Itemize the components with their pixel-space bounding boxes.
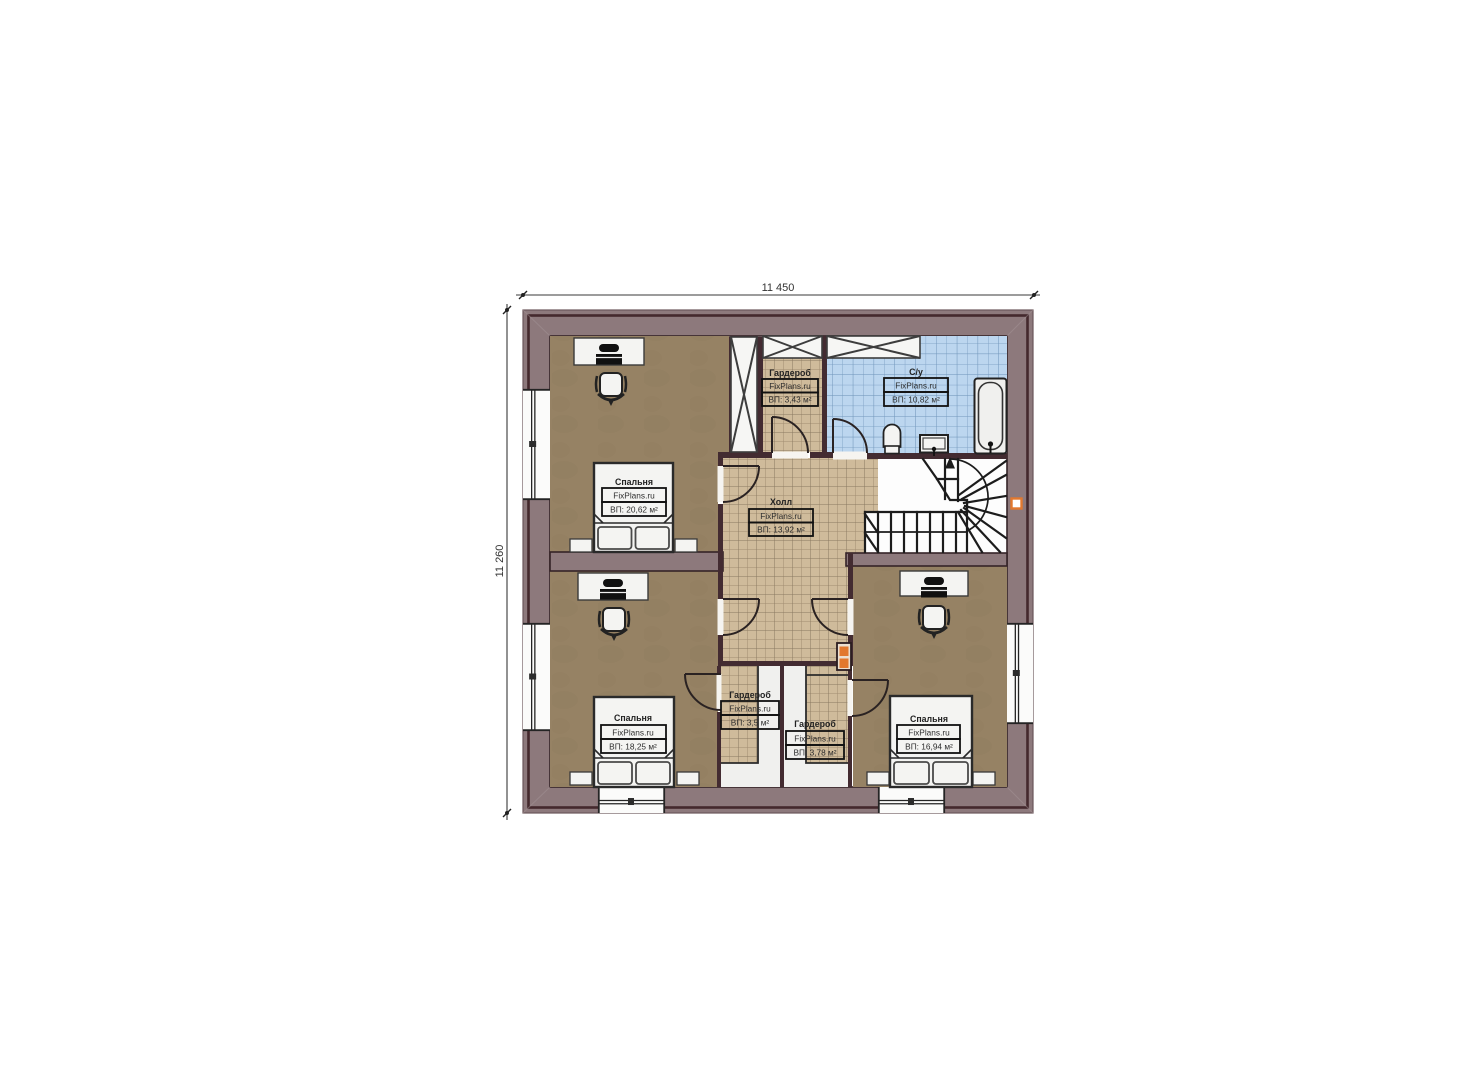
svg-text:11 450: 11 450 bbox=[762, 282, 795, 294]
svg-text:Холл: Холл bbox=[770, 497, 792, 507]
svg-text:11 260: 11 260 bbox=[494, 545, 506, 578]
svg-text:ВП: 18,25 м²: ВП: 18,25 м² bbox=[609, 742, 657, 752]
svg-text:FixPlans.ru: FixPlans.ru bbox=[729, 704, 771, 714]
svg-text:ВП: 13,92 м²: ВП: 13,92 м² bbox=[757, 525, 805, 535]
svg-text:FixPlans.ru: FixPlans.ru bbox=[794, 734, 836, 744]
svg-text:ВП: 10,82 м²: ВП: 10,82 м² bbox=[892, 395, 940, 405]
svg-text:Спальня: Спальня bbox=[614, 713, 652, 723]
svg-text:Гардероб: Гардероб bbox=[729, 690, 771, 700]
svg-text:Гардероб: Гардероб bbox=[794, 719, 836, 729]
svg-text:FixPlans.ru: FixPlans.ru bbox=[895, 381, 937, 391]
svg-text:ВП: 3,78 м²: ВП: 3,78 м² bbox=[793, 748, 836, 758]
svg-text:FixPlans.ru: FixPlans.ru bbox=[760, 511, 802, 521]
svg-text:FixPlans.ru: FixPlans.ru bbox=[612, 728, 654, 738]
svg-text:ВП: 20,62 м²: ВП: 20,62 м² bbox=[610, 505, 658, 515]
svg-text:FixPlans.ru: FixPlans.ru bbox=[613, 491, 655, 501]
svg-text:Спальня: Спальня bbox=[615, 477, 653, 487]
svg-text:FixPlans.ru: FixPlans.ru bbox=[769, 381, 811, 391]
svg-text:FixPlans.ru: FixPlans.ru bbox=[908, 728, 950, 738]
svg-text:Спальня: Спальня bbox=[910, 714, 948, 724]
svg-text:ВП: 16,94 м²: ВП: 16,94 м² bbox=[905, 742, 953, 752]
svg-text:ВП: 3,5 м²: ВП: 3,5 м² bbox=[731, 718, 770, 728]
svg-text:С/у: С/у bbox=[909, 367, 923, 377]
svg-text:ВП: 3,43 м²: ВП: 3,43 м² bbox=[768, 395, 811, 405]
svg-text:Гардероб: Гардероб bbox=[769, 368, 811, 378]
